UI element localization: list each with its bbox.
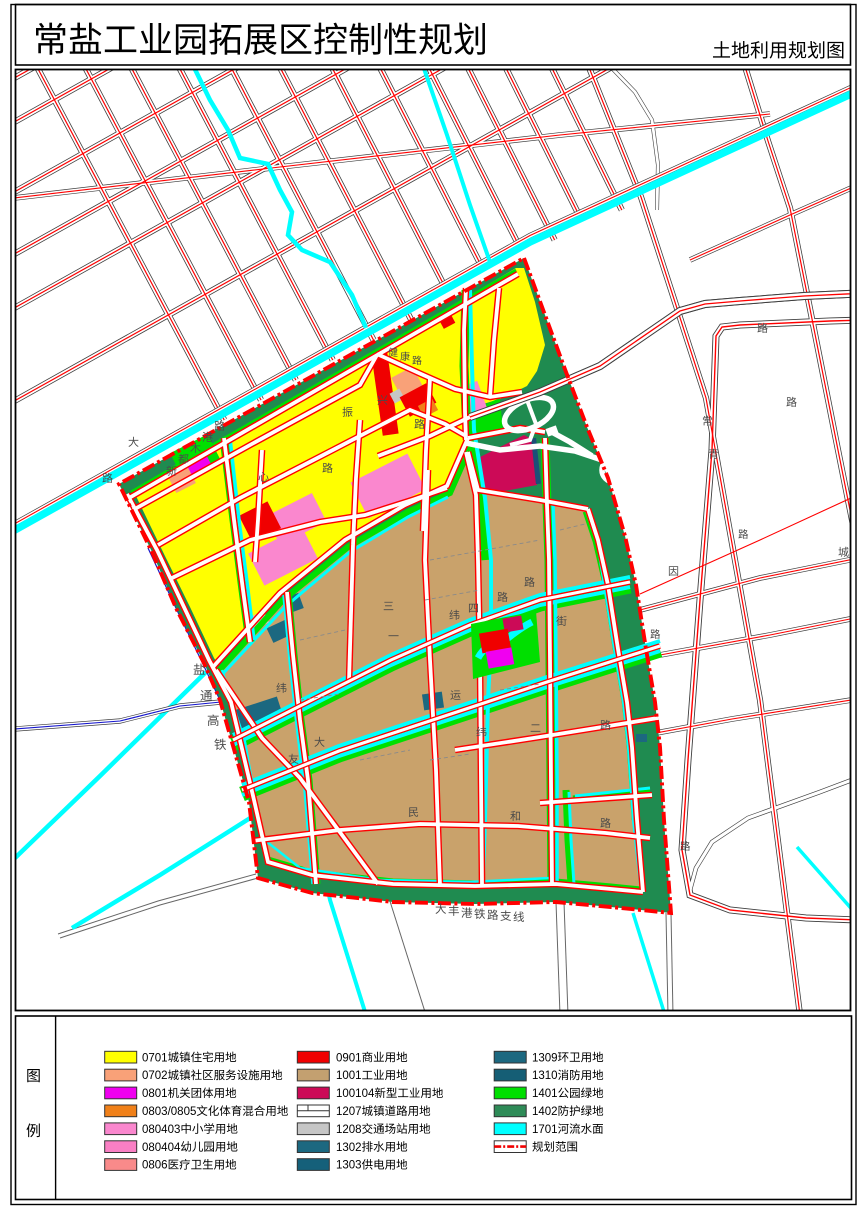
svg-text:0806: 0806 [142,1160,168,1172]
svg-text:0801: 0801 [142,1088,168,1100]
svg-text:1302: 1302 [336,1142,362,1154]
svg-text:080404: 080404 [142,1142,181,1154]
svg-text:100104: 100104 [336,1088,375,1100]
svg-text:1207: 1207 [336,1106,362,1118]
svg-text:1303: 1303 [336,1160,362,1172]
svg-text:0901: 0901 [336,1052,362,1064]
svg-text:1208: 1208 [336,1124,362,1136]
svg-text:1310: 1310 [532,1070,558,1082]
svg-text:1402: 1402 [532,1106,558,1118]
svg-text:0803/0805: 0803/0805 [142,1106,196,1118]
svg-text:1309: 1309 [532,1052,558,1064]
svg-text:1001: 1001 [336,1070,362,1082]
svg-text:1701: 1701 [532,1124,558,1136]
svg-text:1401: 1401 [532,1088,558,1100]
svg-text:080403: 080403 [142,1124,180,1136]
svg-text:0701: 0701 [142,1052,168,1064]
svg-text:0702: 0702 [142,1070,168,1082]
